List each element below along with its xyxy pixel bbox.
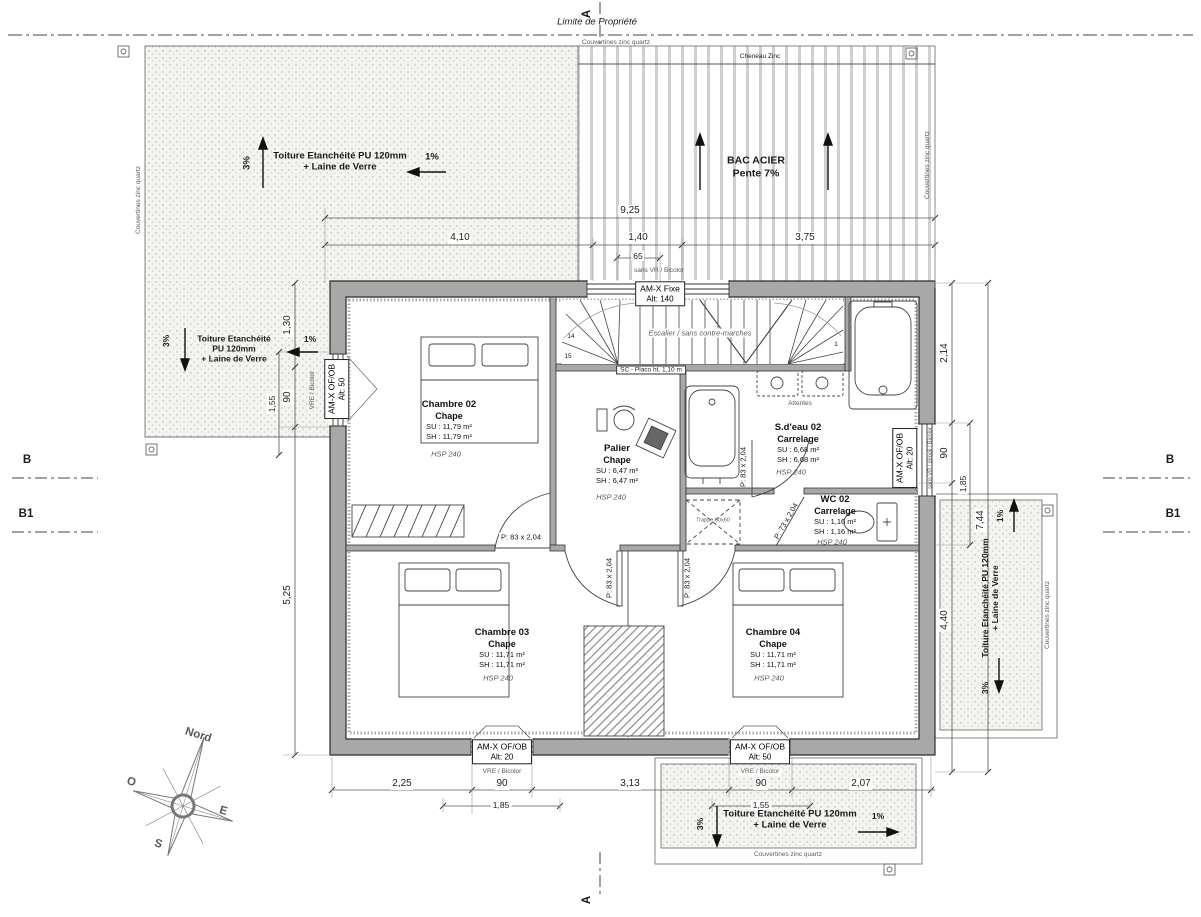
window-top-box: AM-X Fixe Alt: 140 — [635, 281, 685, 306]
section-marker-b1-right: B1 — [1166, 508, 1181, 522]
hsp-chambre02: HSP 240 — [431, 450, 461, 459]
dim-bottom-5: 90 — [753, 778, 768, 790]
sink-bowl-left — [771, 377, 783, 389]
couvertines-label-left: Couvertines zinc quartz — [135, 166, 143, 234]
room-label-wc02: WC 02 Carrelage SU : 1,16 m² SH : 1,16 m… — [814, 494, 856, 536]
dim-top-mid-sub: 65 — [631, 251, 644, 261]
roof-top-left-label: Toiture Etanchéité PU 120mm + Laine de V… — [273, 151, 406, 174]
dim-top-right: 3,75 — [793, 232, 816, 244]
roof-right-slope: 3% — [980, 682, 990, 694]
roof-right-slope-minor: 1% — [995, 510, 1005, 522]
anchor-icon — [146, 444, 157, 455]
washing-machine — [636, 418, 676, 458]
window-left-note: VRE / Bicolor — [309, 371, 317, 410]
compass-rose — [118, 722, 254, 871]
stairs-tread-15: 15 — [564, 353, 571, 361]
sink-bowl-right — [816, 377, 828, 389]
hsp-palier: HSP 240 — [596, 493, 626, 502]
roof-right-label: Toiture Etanchéité PU 120mm + Laine de V… — [980, 538, 1000, 657]
anchor-icon — [1042, 505, 1053, 516]
trappe-label: Trappe 60x60 — [696, 518, 730, 525]
couvertines-label-bac: Couvertines zinc quartz — [924, 131, 932, 199]
roof-bottom-label: Toiture Etanchéité PU 120mm + Laine de V… — [723, 809, 856, 832]
hsp-chambre03: HSP 240 — [483, 674, 513, 683]
hsp-chambre04: HSP 240 — [754, 674, 784, 683]
dim-bottom-4: 3,13 — [618, 778, 641, 790]
window-bottom-right-note: VRE / Bicolor — [739, 768, 782, 776]
roof-left-label: Toiture Etanchéité PU 120mm + Laine de V… — [197, 334, 271, 365]
dim-bottom-2: 90 — [494, 778, 509, 790]
property-line-label: Limite de Propriété — [557, 16, 637, 27]
stairs-sc-label: SC - Placo ht. 1,10 m — [616, 366, 686, 375]
section-marker-a-bottom: A — [581, 896, 595, 904]
door-label-chambre02: P: 83 x 2,04 — [499, 533, 543, 542]
door-label-chambre04: P: 83 x 2,04 — [683, 558, 692, 598]
closet-chambre02 — [352, 505, 464, 537]
doors — [495, 440, 809, 606]
dim-right-3: 1,85 — [958, 474, 968, 495]
dim-right-4: 4,40 — [939, 608, 951, 631]
roof-bottom-slope: 3% — [695, 818, 705, 830]
double-sink — [757, 371, 843, 396]
section-marker-a-top: A — [581, 10, 595, 18]
bathtub — [849, 301, 917, 409]
window-bottom-left-note: VRE / Bicolor — [481, 768, 524, 776]
dim-left-3: 1,55 — [267, 394, 277, 415]
couvertines-label-right: Couvertines zinc quartz — [1044, 581, 1052, 649]
section-marker-b-left: B — [23, 454, 31, 468]
window-right-box: AM-X OF/OB Alt: 20 — [892, 428, 917, 488]
section-marker-b-right: B — [1166, 454, 1174, 468]
cheneau-label: Cheneau Zinc — [740, 53, 780, 61]
section-marker-b1-left: B1 — [19, 508, 34, 522]
roof-left-slope-minor: 1% — [304, 334, 316, 344]
room-label-palier: Palier Chape SU : 6,47 m² SH : 6,47 m² — [596, 443, 638, 485]
window-top-note: sans VR / Bicolor — [634, 267, 684, 275]
stairs-label: Escalier / sans contre-marches — [647, 329, 754, 338]
door-label-chambre03: P: 83 x 2,04 — [605, 558, 614, 598]
window-bottom-right-box: AM-X OF/OB Alt: 50 — [730, 739, 790, 764]
hsp-sdeau02: HSP 240 — [776, 468, 806, 477]
couvertines-label-top: Couvertines zinc quartz — [582, 39, 650, 47]
room-label-chambre04: Chambre 04 Chape SU : 11,71 m² SH : 11,7… — [746, 627, 800, 669]
room-label-chambre02: Chambre 02 Chape SU : 11,79 m² SH : 11,7… — [422, 399, 476, 441]
room-label-sdeau02: S.d'eau 02 Carrelage SU : 6,68 m² SH : 6… — [775, 422, 822, 464]
stairs-tread-14: 14 — [567, 333, 574, 341]
couvertines-label-bottom: Couvertines zinc quartz — [754, 851, 822, 859]
room-label-chambre03: Chambre 03 Chape SU : 11,71 m² SH : 11,7… — [475, 627, 529, 669]
shower-tub — [685, 386, 739, 484]
dim-bottom-6: 1,55 — [751, 800, 772, 810]
dim-right-1: 2,14 — [939, 341, 951, 364]
dim-top-left: 4,10 — [448, 232, 471, 244]
dim-left-2: 90 — [282, 389, 294, 404]
door-label-sdeau02: P: 83 x 2,04 — [739, 447, 748, 487]
roof-top-left-slope-minor: 1% — [425, 151, 439, 162]
roof-bottom-slope-minor: 1% — [872, 811, 884, 821]
dim-bottom-1: 2,25 — [390, 778, 413, 790]
floor-plan-canvas: Limite de Propriété A A B B1 B B1 Couver… — [0, 0, 1201, 917]
bac-acier-label: BAC ACIER Pente 7% — [727, 154, 785, 179]
wardrobe — [584, 626, 664, 736]
window-right-note: sans VR / dépoli / Bicolor — [928, 427, 935, 488]
anchor-icon — [884, 864, 895, 875]
anchor-icon — [118, 46, 129, 57]
roof-top-left-slope: 3% — [241, 156, 252, 170]
dim-bottom-7: 2,07 — [849, 778, 872, 790]
hsp-wc02: HSP 240 — [817, 538, 847, 547]
dim-top-mid: 1,40 — [626, 232, 649, 244]
dim-left-4: 5,25 — [282, 583, 294, 606]
dim-right-2: 90 — [939, 445, 951, 460]
roof-left-slope: 3% — [161, 335, 171, 347]
dim-top-total: 9,25 — [618, 205, 641, 217]
dim-right-total: 7,44 — [975, 508, 987, 531]
attentes-label: Attentes — [788, 400, 812, 408]
palier-desk-chair — [597, 406, 635, 431]
window-left-box: AM-X OF/OB Alt: 50 — [324, 359, 349, 419]
stairs-tread-1: 1 — [834, 341, 838, 349]
window-bottom-left-box: AM-X OF/OB Alt: 20 — [472, 739, 532, 764]
dim-left-1: 1,30 — [282, 313, 294, 336]
dim-bottom-3: 1,85 — [491, 800, 512, 810]
